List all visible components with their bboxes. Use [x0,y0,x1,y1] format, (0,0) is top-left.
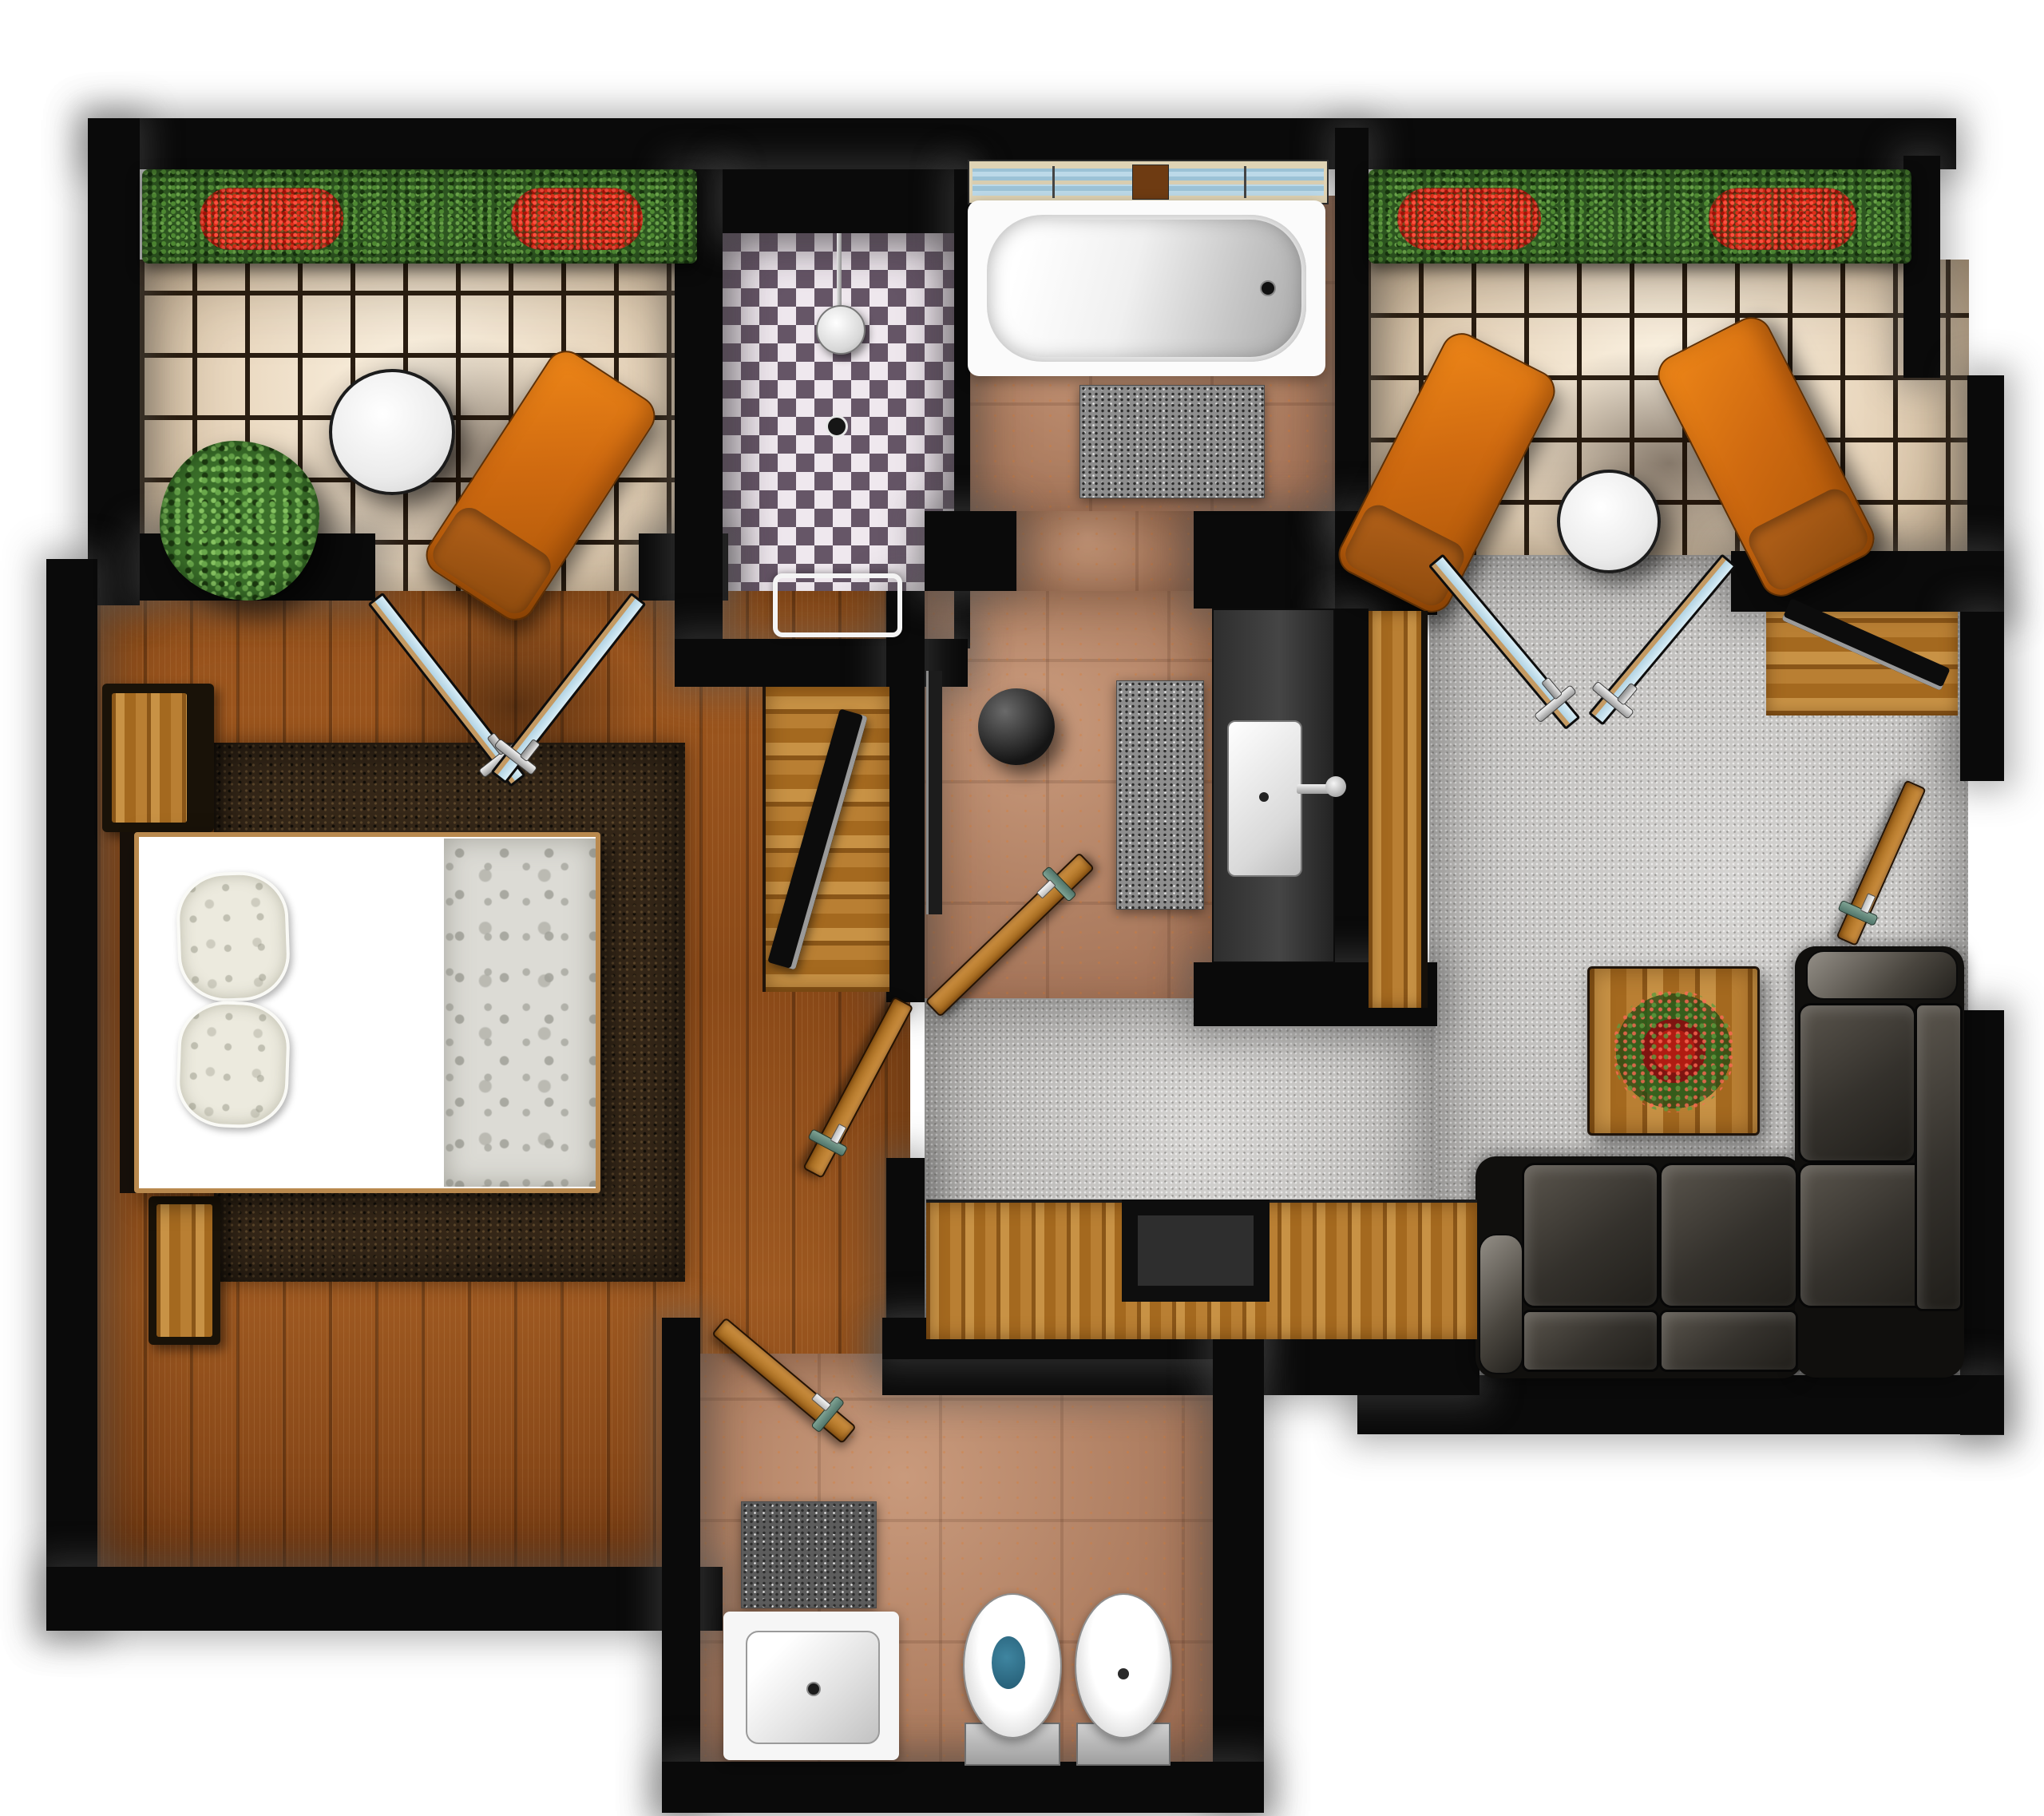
vanity-basin [1227,720,1302,877]
wall-living-east-up [1960,612,2004,781]
bidet-drain-icon [1118,1668,1129,1679]
hall-mirror [926,671,942,914]
sofa-back-bottom-2 [1659,1310,1798,1372]
wall-shower-top [723,169,954,233]
sofa-armrest-top [1806,950,1958,1000]
wc-sink [723,1612,899,1760]
bidet-bowl [1075,1593,1172,1739]
coffee-table [1587,966,1760,1136]
window-divider-left [1052,166,1055,198]
wc-sink-basin [746,1631,880,1744]
wall-bedroom-south [46,1567,723,1631]
nightstand-bottom [149,1196,220,1345]
door-handle-icon [1041,866,1077,902]
sofa-back-bottom-1 [1522,1310,1659,1372]
bed-pillow-1 [175,870,291,1004]
door-handle-icon [810,1395,845,1433]
vanity-drain-icon [1259,792,1269,802]
shower-head-icon [816,305,866,355]
shower-tray [773,573,902,637]
wall-hall-stub-west [925,511,1016,591]
toilet-bowl [963,1593,1062,1739]
wall-wc-east [1213,1318,1264,1813]
hall-rug [1116,680,1204,910]
sideboard-tv-screen [1138,1215,1254,1286]
wall-living-east-low [1960,1010,2004,1435]
bed-pillow-2 [175,1000,291,1130]
bath-rug [1079,385,1265,498]
bed-duvet [444,839,596,1187]
flowers-right-1 [1397,188,1541,250]
double-bed [134,832,600,1193]
sofa-seat-right [1798,1003,1916,1163]
toilet [963,1593,1059,1762]
floor-plan-canvas [0,0,2044,1816]
vanity-faucet-knob [1325,776,1346,797]
nightstand-surface [112,693,187,823]
bidet [1075,1593,1169,1762]
wc-rug [741,1501,877,1608]
wall-bedroom-east-up [886,591,925,1002]
wall-balcony-west [88,118,140,605]
wall-vanity-counter [1335,609,1369,1008]
wall-bath-balcony [1335,128,1369,527]
room-hall-connector [1014,511,1198,599]
bathtub [968,200,1325,376]
potted-shrub [160,441,319,601]
hall-stool [978,688,1055,765]
sofa-armrest-left [1479,1234,1523,1374]
window-mullion [1132,165,1169,200]
wall-wc-west [662,1318,700,1813]
bathtub-basin [987,215,1306,362]
sofa-seat-2 [1659,1163,1798,1308]
flowers-right-2 [1709,188,1856,250]
wall-wc-south [662,1762,1264,1813]
flower-arrangement [1612,989,1735,1112]
bathtub-drain-icon [1260,280,1276,296]
toilet-water [992,1636,1025,1689]
nightstand-top [102,684,214,832]
vanity-counter [1212,609,1335,963]
sofa-seat-1 [1522,1163,1659,1308]
window-divider-right [1244,166,1246,198]
bed-fold-band [378,839,444,1187]
sofa-back-right [1915,1003,1963,1311]
shower-drain-icon [826,415,848,438]
kitchen-counter-strip [1369,611,1428,1008]
flowers-left-2 [511,188,643,250]
bistro-table-left [329,369,455,495]
nightstand-surface [156,1204,212,1337]
flower-speckles [1612,989,1735,1112]
bathroom-window [968,160,1329,204]
wall-bedroom-west [46,559,97,1631]
wall-hall-stub-east [1194,511,1339,609]
bistro-table-right [1557,470,1661,573]
flowers-left-1 [200,188,343,250]
sofa-seat-corner [1798,1163,1934,1308]
wc-sink-drain-icon [806,1682,821,1696]
sideboard-tv-icon [1122,1199,1270,1302]
